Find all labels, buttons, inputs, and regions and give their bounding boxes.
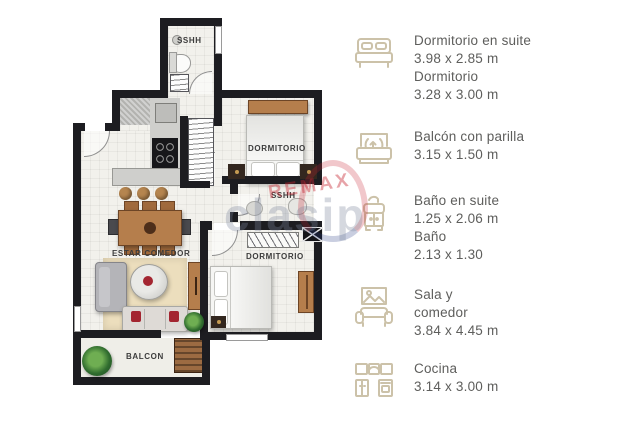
legend: Dormitorio en suite 3.98 x 2.85 m Dormit…	[352, 0, 640, 427]
legend-item-sala: Sala y comedor 3.84 x 4.45 m	[352, 286, 498, 340]
double-bed-icon	[352, 32, 400, 104]
kitchen-sink	[155, 103, 177, 123]
legend-text: Baño en suite 1.25 x 2.06 m Baño 2.13 x …	[414, 192, 499, 264]
shower-tray	[170, 74, 189, 92]
legend-line: 3.15 x 1.50 m	[414, 146, 524, 164]
legend-line: 3.28 x 3.00 m	[414, 86, 531, 104]
window	[74, 306, 81, 332]
kitchen-upper-cabinet	[120, 98, 150, 125]
legend-line: 3.84 x 4.45 m	[414, 322, 498, 340]
legend-text: Sala y comedor 3.84 x 4.45 m	[414, 286, 498, 340]
sofa	[122, 306, 188, 332]
legend-text: Cocina 3.14 x 3.00 m	[414, 360, 498, 409]
bar-stool	[137, 187, 150, 200]
wall	[180, 116, 188, 188]
legend-line: 3.98 x 2.85 m	[414, 50, 531, 68]
plant	[184, 312, 204, 332]
legend-text: Balcón con parilla 3.15 x 1.50 m	[414, 128, 524, 177]
room-label-bedroom-top: DORMITORIO	[248, 144, 306, 153]
legend-text: Dormitorio en suite 3.98 x 2.85 m Dormit…	[414, 32, 531, 104]
nightstand	[228, 164, 245, 179]
grill	[174, 338, 203, 373]
sofa-picture-icon	[352, 286, 400, 340]
kitchen-cabinets-icon	[352, 360, 400, 409]
legend-line: 2.13 x 1.30	[414, 246, 499, 264]
bar-stool	[155, 187, 168, 200]
wall	[112, 90, 168, 98]
nightstand	[211, 316, 226, 328]
wall	[73, 377, 210, 385]
wardrobe	[298, 271, 314, 313]
legend-item-banos: Baño en suite 1.25 x 2.06 m Baño 2.13 x …	[352, 192, 499, 264]
legend-line: Balcón con parilla	[414, 128, 524, 146]
shelving-rack	[188, 118, 214, 186]
legend-line: 3.14 x 3.00 m	[414, 378, 498, 396]
legend-line: Dormitorio	[414, 68, 531, 86]
legend-item-balcon: Balcón con parilla 3.15 x 1.50 m	[352, 128, 524, 177]
window	[226, 334, 268, 341]
legend-line: Baño	[414, 228, 499, 246]
wall	[81, 330, 161, 338]
washbasin-icon	[352, 192, 400, 264]
stove	[152, 138, 178, 168]
shaft-box	[302, 227, 323, 242]
legend-line: comedor	[414, 304, 498, 322]
wall	[160, 18, 222, 26]
legend-line: Sala y	[414, 286, 498, 304]
floorplan-listing-image: SSHH DORMITORIO SSHH ESTAR COMEDOR DORMI…	[0, 0, 640, 427]
coffee-table	[130, 264, 168, 300]
legend-item-dormitorios: Dormitorio en suite 3.98 x 2.85 m Dormit…	[352, 32, 531, 104]
dining-table	[118, 210, 182, 246]
kitchen-bar-counter	[112, 168, 182, 186]
chaise-sofa	[95, 262, 127, 312]
legend-line: Dormitorio en suite	[414, 32, 531, 50]
balcony-plant	[82, 346, 112, 376]
room-label-balcony: BALCON	[126, 352, 164, 361]
legend-line: 1.25 x 2.06 m	[414, 210, 499, 228]
room-label-bathroom-ensuite: SSHH	[271, 191, 296, 200]
wall	[160, 18, 168, 98]
wall	[230, 184, 238, 194]
room-label-bathroom-top: SSHH	[177, 36, 202, 45]
window	[215, 26, 222, 54]
wall	[105, 123, 120, 131]
wall	[214, 90, 322, 98]
legend-line: Baño en suite	[414, 192, 499, 210]
dresser	[248, 100, 308, 114]
wall	[230, 212, 238, 222]
wall	[200, 221, 212, 230]
nightstand	[300, 164, 317, 179]
legend-item-cocina: Cocina 3.14 x 3.00 m	[352, 360, 498, 409]
balcony-planter-icon	[352, 128, 400, 177]
room-label-bedroom-bottom: DORMITORIO	[246, 252, 304, 261]
ensuite-toilet	[288, 198, 307, 215]
closet-hatch	[247, 232, 299, 248]
legend-line: Cocina	[414, 360, 498, 378]
wall	[182, 181, 210, 188]
room-label-living: ESTAR COMEDOR	[112, 249, 190, 258]
ensuite-washbasin	[246, 201, 263, 216]
toilet-tank	[169, 52, 177, 73]
bar-stool	[119, 187, 132, 200]
wall	[73, 123, 81, 385]
